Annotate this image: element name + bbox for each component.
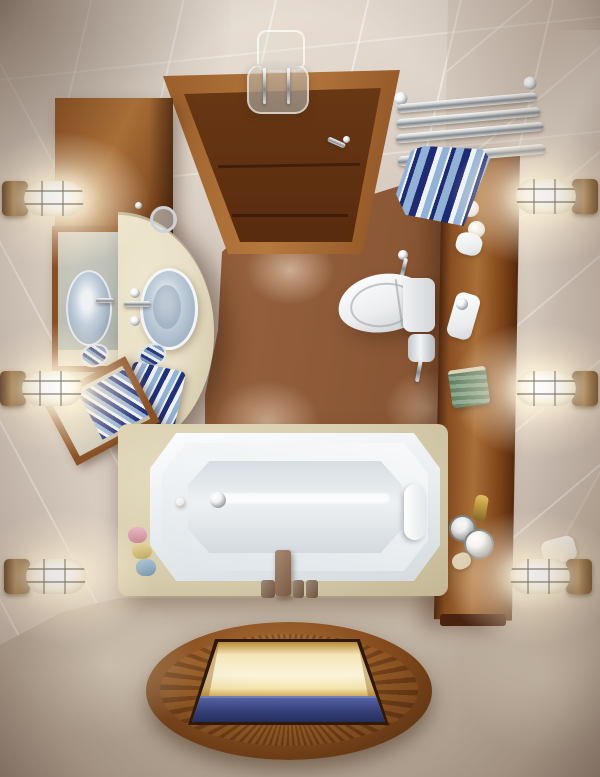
sconce-cage xyxy=(24,181,84,216)
toilet xyxy=(336,248,440,380)
opening-water xyxy=(192,696,385,722)
door-rail xyxy=(232,214,348,217)
tray-pump xyxy=(456,298,468,310)
toilet-tank xyxy=(403,278,435,332)
sprayer-hose xyxy=(400,258,408,276)
sconce-cage xyxy=(26,559,86,594)
mirror-reflection-faucet xyxy=(96,298,114,303)
sink-inner xyxy=(153,285,181,329)
wall-sconce-right-2 xyxy=(512,368,598,410)
wall-sconce-left-1 xyxy=(2,178,88,220)
wall-sconce-left-3 xyxy=(4,556,90,598)
sconce-cage xyxy=(516,179,576,214)
lamp-pin xyxy=(287,68,290,104)
sconce-cage xyxy=(22,371,82,406)
tub-handle xyxy=(306,580,318,598)
wall-sconce-right-3 xyxy=(506,556,592,598)
floor-window-opening xyxy=(192,642,385,722)
lamp-pin xyxy=(263,68,266,104)
ceiling-lamp xyxy=(247,28,309,112)
tub-handle xyxy=(293,580,304,598)
faucet-handle xyxy=(130,288,140,298)
sconce-cage xyxy=(510,559,570,594)
tub-headrest xyxy=(404,484,426,540)
bathtub xyxy=(150,433,440,581)
glass-tumbler xyxy=(150,206,177,233)
door-handle-base xyxy=(343,136,350,143)
sink-faucet xyxy=(124,301,151,307)
vessel-sink xyxy=(140,268,198,350)
floor-window xyxy=(146,622,432,760)
wall-sconce-right-1 xyxy=(512,176,598,218)
bathroom-top-view xyxy=(0,0,600,777)
tub-water-sheen xyxy=(210,493,390,503)
rack-mount xyxy=(523,76,537,90)
tub-overflow xyxy=(176,498,184,506)
sconce-cage xyxy=(516,371,576,406)
tub-drain xyxy=(210,492,226,508)
wall-sconce-left-2 xyxy=(0,368,86,410)
tub-handle xyxy=(261,580,275,598)
lamp-shade xyxy=(247,64,309,114)
tub-spout xyxy=(275,550,291,596)
